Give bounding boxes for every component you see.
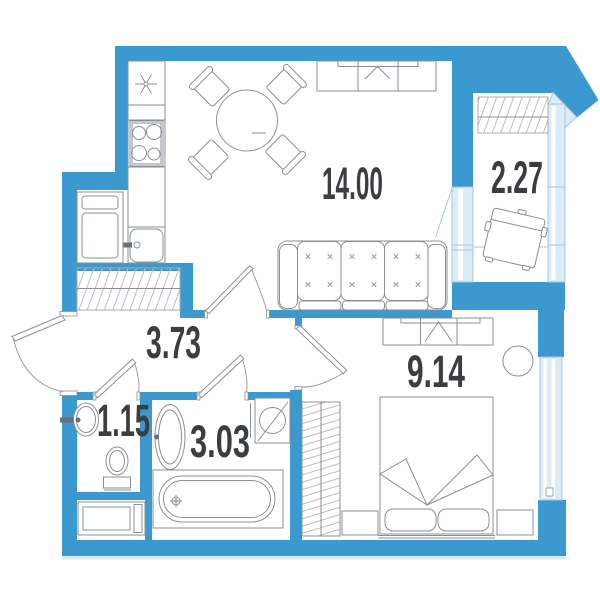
- bottom-wall: [62, 540, 566, 556]
- area-label-living: 14.00: [322, 158, 383, 209]
- living-balcony-wall: [452, 61, 473, 187]
- bedroom-closet-hatch-icon: [302, 402, 340, 536]
- hallway-closet-hatch-icon: [77, 268, 180, 310]
- pouf-icon: [503, 346, 533, 376]
- toilet-icon: [104, 447, 132, 490]
- dining-table: [217, 90, 278, 151]
- living-room-door: [206, 266, 267, 314]
- living-wardrobe-icon: [317, 61, 436, 91]
- toilet-door-leaf: [94, 359, 135, 398]
- balcony-bottom-wall: [452, 282, 565, 310]
- left-outer-wall-upper: [62, 172, 77, 316]
- balcony-armchair-icon: [478, 203, 550, 273]
- cooktop-icon: [130, 121, 163, 166]
- fridge-icon: [77, 192, 123, 263]
- nightstand-icon: [342, 511, 378, 535]
- cabinet-niche-right-wall: [145, 492, 152, 540]
- kitchen-sink-icon: [119, 229, 163, 262]
- bathroom-sink-icon: [154, 405, 185, 470]
- bedroom-right-wall-lower: [538, 500, 566, 556]
- bathroom-right-wall: [290, 390, 302, 540]
- entrance-door: [12, 316, 65, 393]
- area-label-bedroom: 9.14: [407, 346, 465, 397]
- bedroom-door: [296, 325, 346, 387]
- bedroom-right-wall-upper: [538, 310, 564, 357]
- toilet-bottom-wall: [62, 492, 152, 500]
- area-label-balcony: 2.27: [491, 152, 543, 203]
- outer-shadow-line: [62, 556, 566, 560]
- pillow: [385, 509, 436, 531]
- living-left-wall: [115, 46, 128, 190]
- bedroom-door-leaf: [296, 325, 346, 373]
- balcony-glazing-side: [548, 104, 565, 282]
- chair-icon: [264, 63, 307, 106]
- balcony-door-swing-icon: [436, 188, 453, 238]
- cabinet-icon: [78, 502, 145, 535]
- toilet-door: [94, 359, 139, 398]
- balcony-shelf-hatch-icon: [478, 97, 548, 133]
- area-label-toilet: 1.15: [97, 395, 150, 446]
- chair-icon: [187, 137, 230, 180]
- bed-icon: [378, 397, 495, 538]
- bathtub-icon: [153, 470, 283, 528]
- pillow: [438, 509, 489, 531]
- bedroom-window: [540, 357, 562, 500]
- floor-plan-canvas: 14.00 2.27 3.73 1.15 3.03 9.14: [0, 0, 600, 600]
- closet-right-wall: [180, 263, 193, 310]
- entrance-door-leaf: [12, 316, 65, 342]
- sofa-icon: [278, 241, 447, 310]
- floor-plan: 14.00 2.27 3.73 1.15 3.03 9.14: [0, 0, 600, 600]
- living-room-door-leaf: [206, 266, 254, 314]
- sanitary-top-wall-1: [77, 392, 93, 400]
- washing-machine-icon: [251, 398, 291, 443]
- area-label-hallway: 3.73: [146, 317, 201, 368]
- bathroom-door-leaf: [198, 355, 243, 398]
- hall-living-wall-right: [269, 310, 452, 318]
- bathroom-door: [198, 355, 247, 398]
- bedroom-wardrobe-icon: [383, 318, 493, 345]
- bedroom-door-stub: [295, 318, 302, 326]
- area-label-bathroom: 3.03: [190, 416, 250, 467]
- nightstand-icon: [497, 510, 533, 535]
